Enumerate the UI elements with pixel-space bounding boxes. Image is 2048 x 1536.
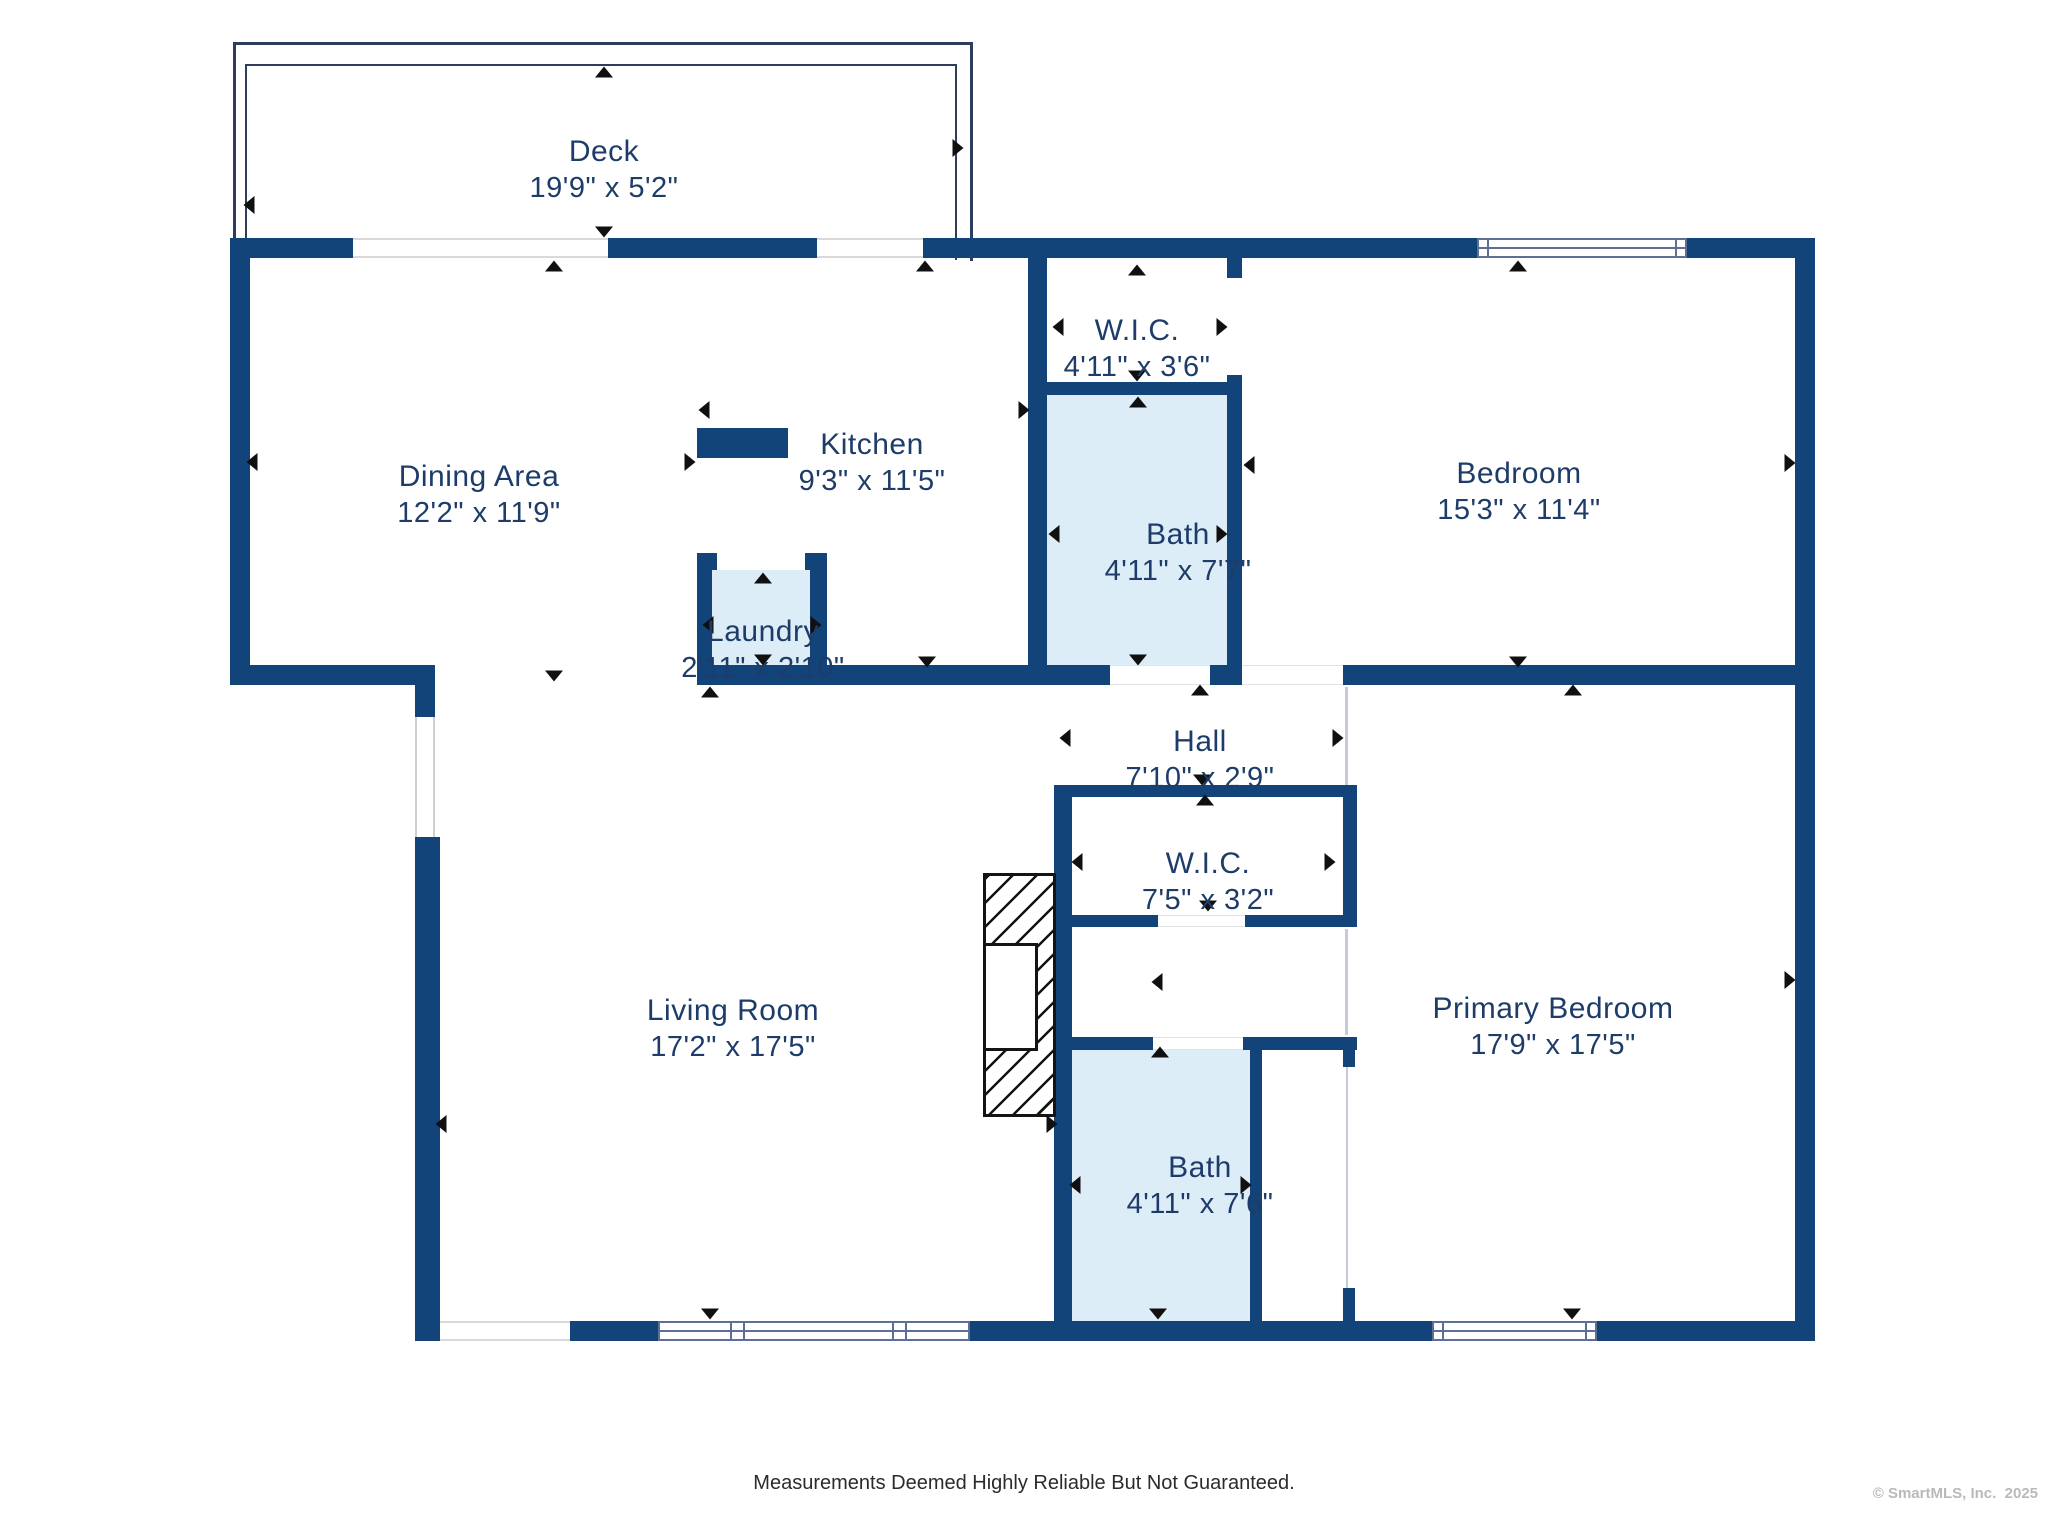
room-label-bedroom: Bedroom 15'3" x 11'4" — [1437, 456, 1600, 528]
window-frame-line — [905, 1323, 907, 1339]
deck-slider-opening — [817, 238, 923, 258]
dimension-arrow-up — [595, 67, 613, 78]
dimension-arrow-down — [918, 657, 936, 668]
room-label-hall: Hall 7'10" x 2'9" — [1126, 724, 1275, 796]
closet-slider-line — [1346, 1067, 1348, 1288]
fireplace — [983, 873, 1056, 1117]
dimension-arrow-left — [244, 196, 255, 214]
firebox — [983, 943, 1038, 1051]
room-name: Bedroom — [1437, 456, 1600, 492]
dimension-arrow-down — [545, 671, 563, 682]
dimension-arrow-up — [1129, 397, 1147, 408]
dimension-arrow-up — [701, 687, 719, 698]
dimension-arrow-down — [1563, 1309, 1581, 1320]
window-frame-line — [730, 1323, 732, 1339]
bedroom-window — [1477, 238, 1687, 258]
dimension-arrow-down — [701, 1309, 719, 1320]
dimension-arrow-right — [1785, 454, 1796, 472]
wall-segment — [1343, 785, 1357, 927]
dimension-arrow-left — [699, 401, 710, 419]
wall-segment — [415, 665, 435, 717]
window-mullion — [1479, 247, 1685, 249]
wall-segment — [230, 665, 435, 685]
dimension-arrow-left — [1072, 853, 1083, 871]
window-mullion — [660, 1330, 968, 1332]
window-mullion — [1434, 1330, 1595, 1332]
bedroom-door-opening — [1242, 665, 1343, 685]
room-label-laundry: Laundry 2'11" x 2'10" — [681, 614, 844, 686]
dimension-arrow-left — [1053, 318, 1064, 336]
deck-slider-opening — [353, 238, 608, 258]
room-dims: 12'2" x 11'9" — [397, 495, 560, 531]
room-label-dining: Dining Area 12'2" x 11'9" — [397, 459, 560, 531]
room-label-bath-bottom: Bath 4'11" x 7'6" — [1127, 1150, 1274, 1222]
wall-segment — [1054, 785, 1072, 1341]
kitchen-counter — [697, 428, 788, 458]
dimension-arrow-up — [754, 573, 772, 584]
wall-segment — [923, 238, 1477, 258]
wall-segment — [1343, 1037, 1355, 1067]
room-name: Primary Bedroom — [1433, 991, 1674, 1027]
wall-segment — [1343, 665, 1795, 685]
dimension-arrow-right — [1785, 971, 1796, 989]
disclaimer-text: Measurements Deemed Highly Reliable But … — [0, 1472, 2048, 1495]
room-name: Kitchen — [799, 427, 946, 463]
room-dims: 9'3" x 11'5" — [799, 463, 946, 499]
window-frame-line — [1487, 240, 1489, 256]
wall-segment — [415, 837, 440, 1341]
room-dims: 19'9" x 5'2" — [530, 170, 679, 206]
dimension-arrow-right — [1047, 1115, 1058, 1133]
copyright-text: © SmartMLS, Inc. 2025 — [1873, 1485, 2038, 1502]
dimension-arrow-down — [595, 227, 613, 238]
dimension-arrow-up — [1151, 1047, 1169, 1058]
window-frame-line — [743, 1323, 745, 1339]
room-name: W.I.C. — [1142, 846, 1274, 882]
wall-segment — [1343, 1288, 1355, 1321]
room-dims: 2'11" x 2'10" — [681, 650, 844, 686]
wall-segment — [608, 238, 817, 258]
dimension-arrow-left — [1049, 525, 1060, 543]
room-name: Laundry — [681, 614, 844, 650]
dimension-arrow-right — [685, 453, 696, 471]
room-dims: 4'11" x 7'6" — [1127, 1186, 1274, 1222]
window-frame-line — [1675, 240, 1677, 256]
dimension-arrow-left — [1060, 729, 1071, 747]
dimension-arrow-left — [1244, 456, 1255, 474]
room-name: Living Room — [647, 993, 819, 1029]
dimension-arrow-left — [1070, 1176, 1081, 1194]
room-dims: 7'5" x 3'2" — [1142, 882, 1274, 918]
dimension-arrow-down — [1129, 655, 1147, 666]
hall-primary-door-line — [1345, 687, 1348, 785]
room-name: Deck — [530, 134, 679, 170]
dimension-arrow-left — [1152, 973, 1163, 991]
dimension-arrow-down — [1149, 1309, 1167, 1320]
dimension-arrow-down — [1509, 657, 1527, 668]
floor-plan-canvas: Deck 19'9" x 5'2" Dining Area 12'2" x 11… — [0, 0, 2048, 1536]
dimension-arrow-up — [545, 261, 563, 272]
room-label-kitchen: Kitchen 9'3" x 11'5" — [799, 427, 946, 499]
patio-door-opening — [440, 1321, 570, 1341]
wall-segment — [1243, 1037, 1357, 1050]
room-dims: 4'11" x 3'6" — [1064, 349, 1211, 385]
wall-segment — [805, 553, 827, 570]
room-label-primary: Primary Bedroom 17'9" x 17'5" — [1433, 991, 1674, 1063]
room-label-wic-top: W.I.C. 4'11" x 3'6" — [1064, 313, 1211, 385]
wall-segment — [570, 1321, 658, 1341]
dimension-arrow-right — [1217, 318, 1228, 336]
dimension-arrow-right — [1333, 729, 1344, 747]
room-dims: 17'2" x 17'5" — [647, 1029, 819, 1065]
room-name: Bath — [1105, 517, 1252, 553]
dimension-arrow-right — [953, 139, 964, 157]
room-name: Dining Area — [397, 459, 560, 495]
room-dims: 17'9" x 17'5" — [1433, 1027, 1674, 1063]
room-name: Hall — [1126, 724, 1275, 760]
dimension-arrow-left — [436, 1115, 447, 1133]
dimension-arrow-up — [1564, 685, 1582, 696]
room-label-deck: Deck 19'9" x 5'2" — [530, 134, 679, 206]
room-dims: 15'3" x 11'4" — [1437, 492, 1600, 528]
vestibule-primary-door-line — [1345, 929, 1348, 1035]
wall-segment — [1795, 238, 1815, 1341]
wall-opening — [415, 717, 435, 837]
dimension-arrow-up — [1509, 261, 1527, 272]
room-name: Bath — [1127, 1150, 1274, 1186]
room-dims: 7'10" x 2'9" — [1126, 760, 1275, 796]
room-name: W.I.C. — [1064, 313, 1211, 349]
dimension-arrow-up — [916, 261, 934, 272]
dimension-arrow-right — [1325, 853, 1336, 871]
room-dims: 4'11" x 7'7" — [1105, 553, 1252, 589]
dimension-arrow-up — [1128, 265, 1146, 276]
window-frame-line — [1585, 1323, 1587, 1339]
wall-segment — [1072, 1037, 1153, 1050]
dimension-arrow-left — [247, 453, 258, 471]
wall-segment — [697, 553, 717, 570]
window-frame-line — [1442, 1323, 1444, 1339]
window-frame-line — [892, 1323, 894, 1339]
bath-door-opening — [1110, 665, 1210, 685]
primary-bedroom-window — [1432, 1321, 1597, 1341]
dimension-arrow-up — [1191, 685, 1209, 696]
wall-segment — [1227, 258, 1242, 278]
room-label-living: Living Room 17'2" x 17'5" — [647, 993, 819, 1065]
wall-segment — [970, 1321, 1432, 1341]
dimension-arrow-right — [1019, 401, 1030, 419]
dimension-arrow-up — [1196, 795, 1214, 806]
wall-segment — [1597, 1321, 1815, 1341]
living-room-window — [658, 1321, 970, 1341]
wall-segment — [1028, 238, 1047, 685]
room-label-wic-mid: W.I.C. 7'5" x 3'2" — [1142, 846, 1274, 918]
room-label-bath-top: Bath 4'11" x 7'7" — [1105, 517, 1252, 589]
